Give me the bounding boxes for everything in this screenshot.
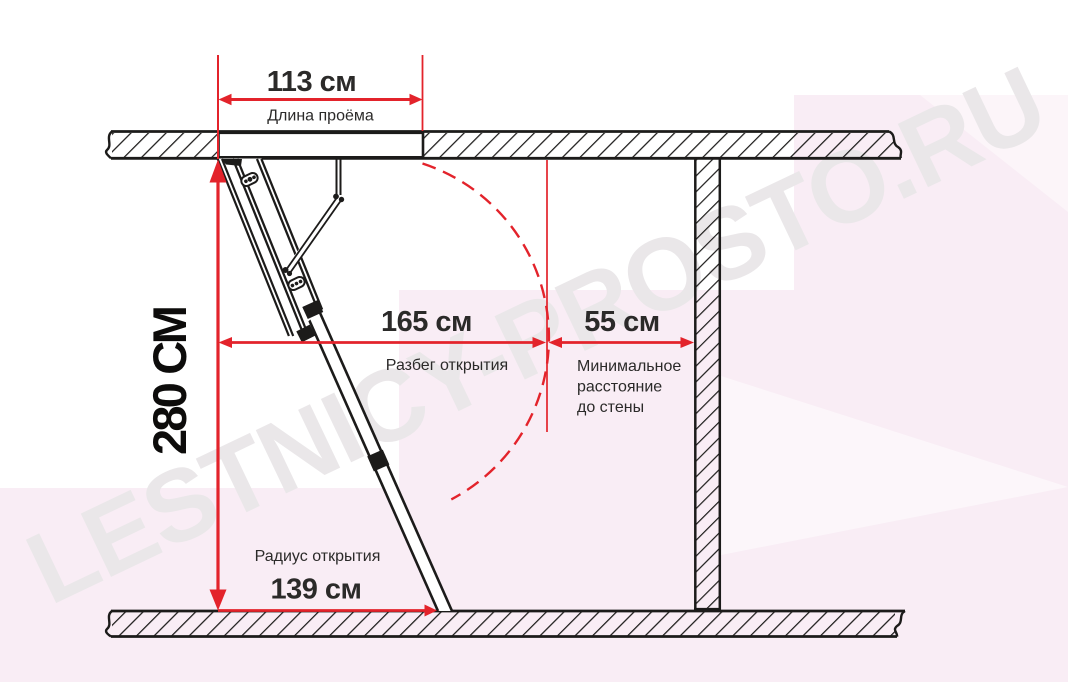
svg-text:Минимальное: Минимальное [577,358,681,375]
svg-text:280 СМ: 280 СМ [143,308,196,455]
svg-text:расстояние: расстояние [577,379,662,396]
svg-text:Длина проёма: Длина проёма [267,108,374,125]
svg-text:55 см: 55 см [584,306,659,338]
svg-text:113 см: 113 см [267,66,356,98]
svg-text:Разбег открытия: Разбег открытия [386,357,508,374]
svg-text:165 см: 165 см [381,306,472,338]
svg-text:139 см: 139 см [270,574,361,606]
svg-text:до стены: до стены [577,399,644,416]
svg-text:Радиус открытия: Радиус открытия [255,548,381,565]
